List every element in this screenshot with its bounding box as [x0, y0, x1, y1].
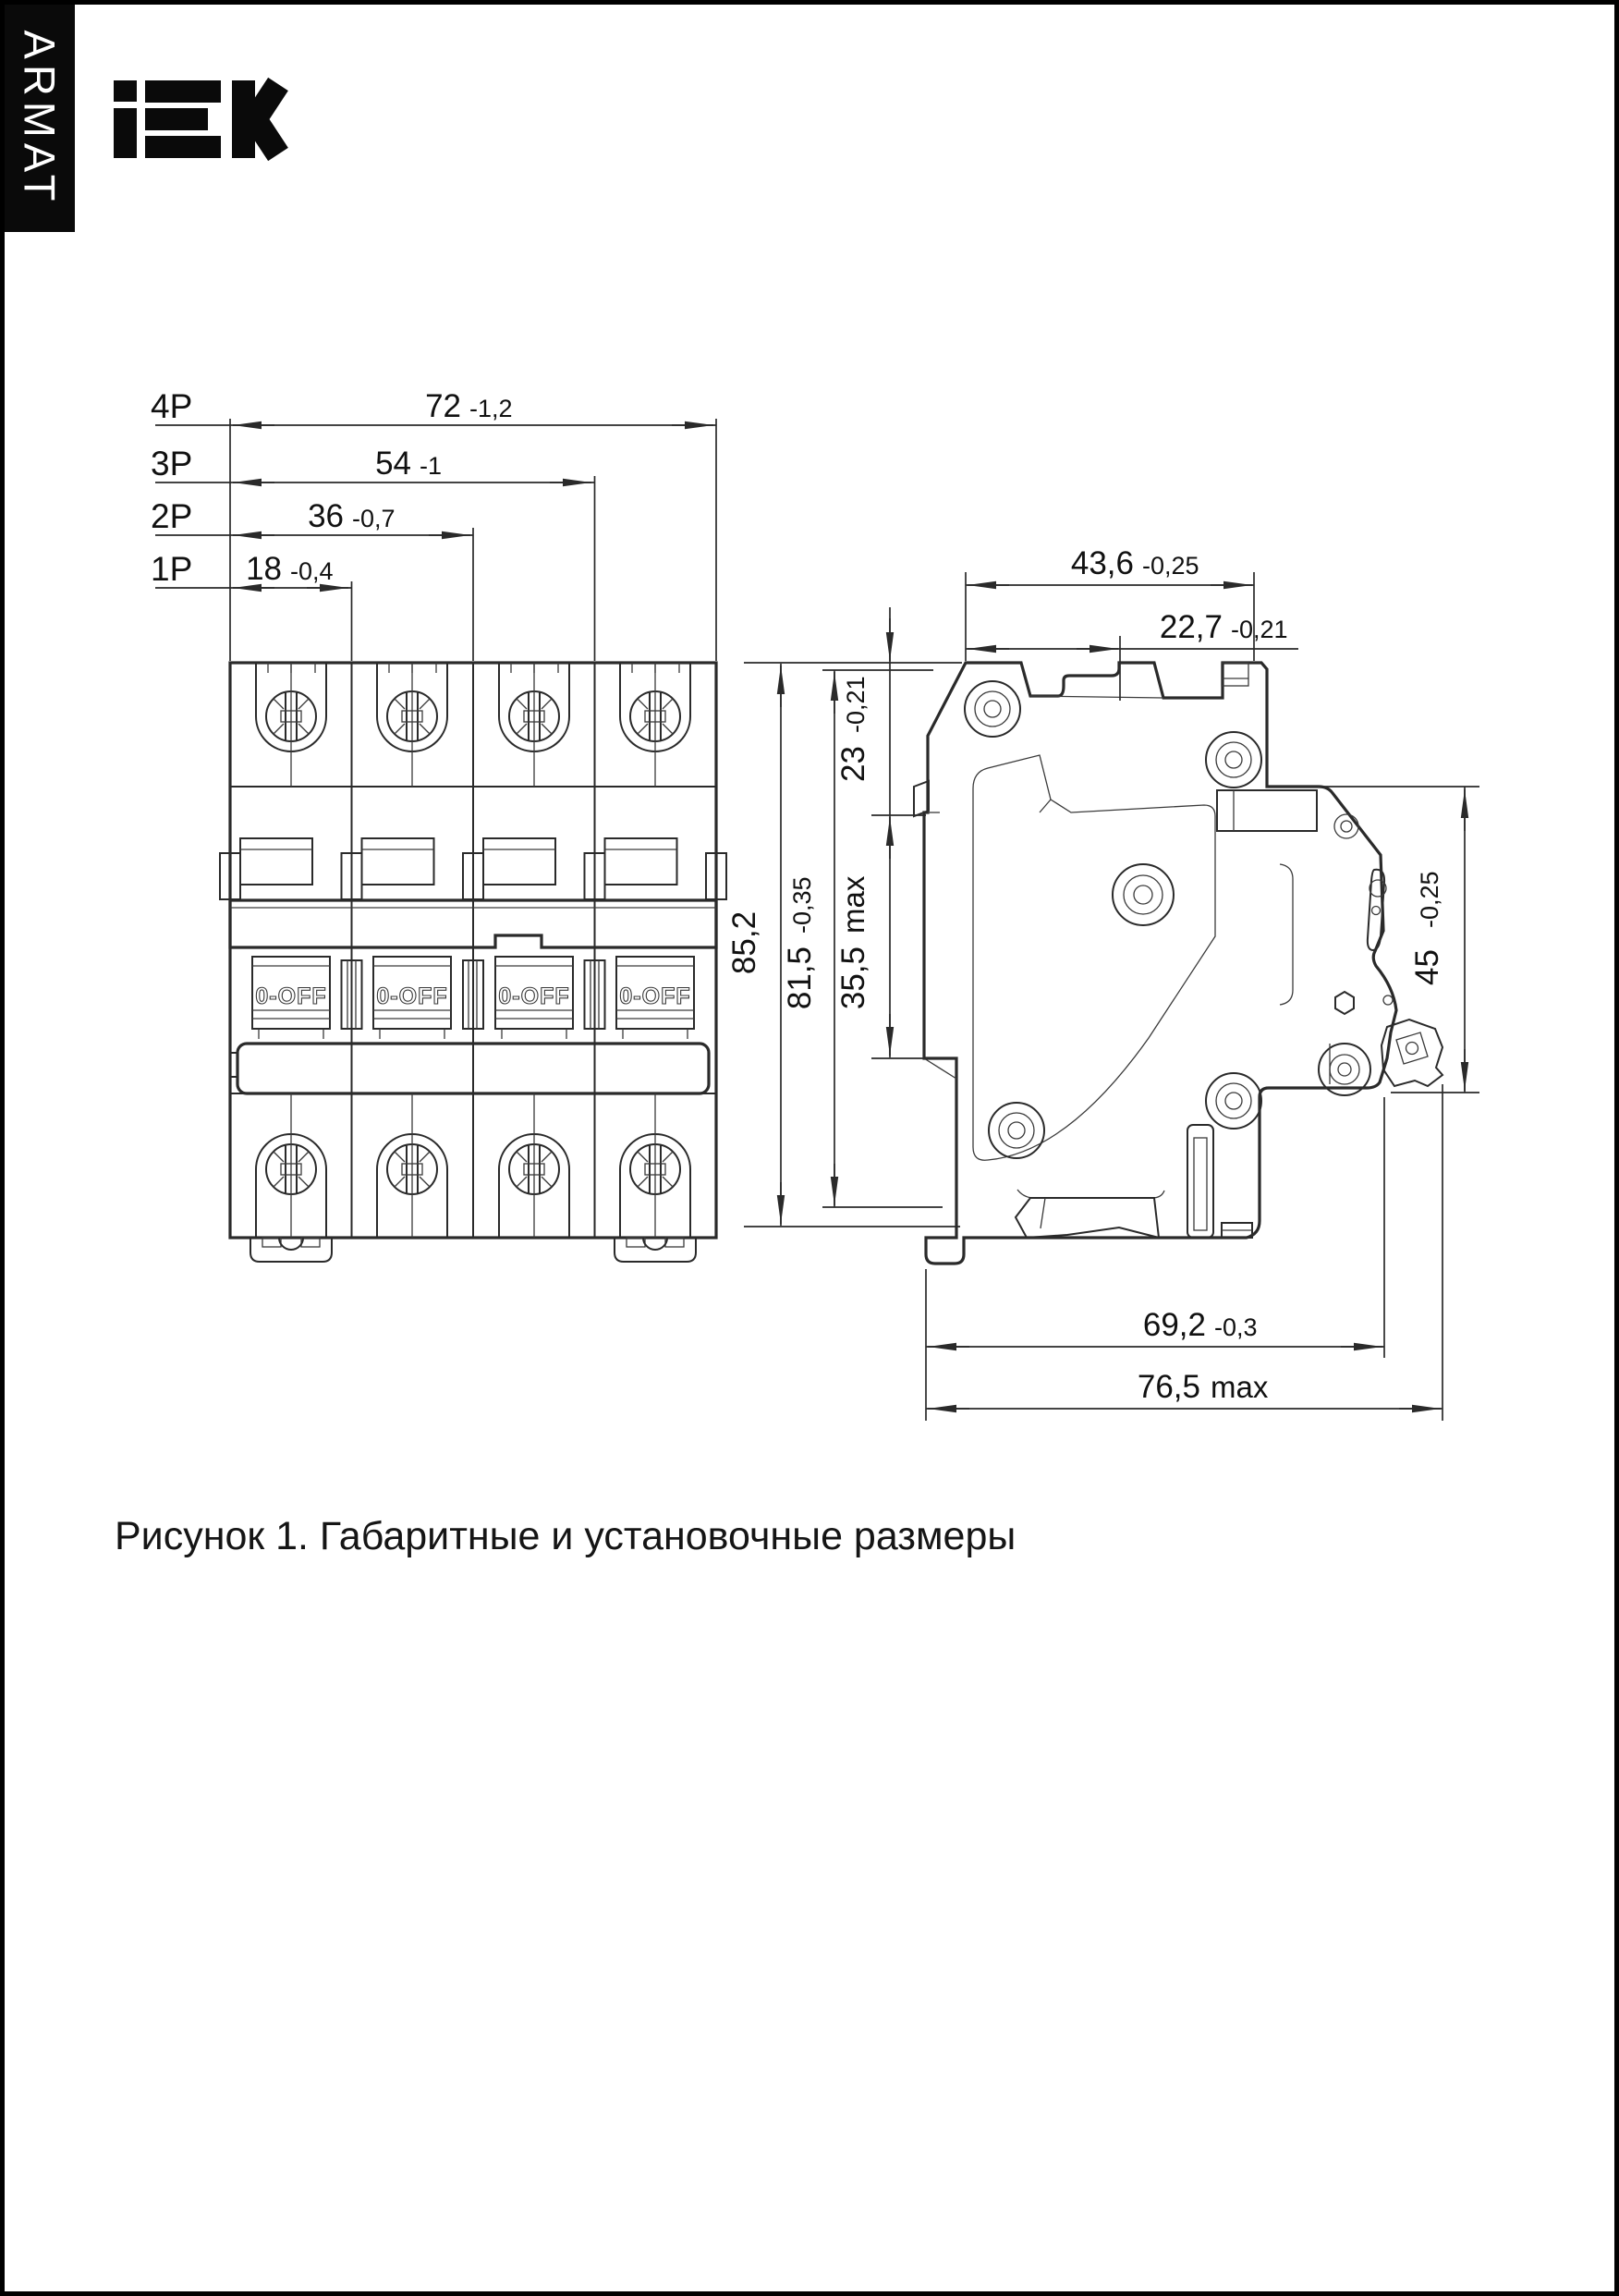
- din-clip: [615, 1238, 696, 1262]
- screw-terminal-icon: [620, 1093, 690, 1238]
- pole-count-label: 1P: [151, 550, 192, 588]
- lockout-slot: [1187, 1125, 1213, 1238]
- dim-tolerance: -0,25: [1416, 871, 1443, 928]
- dim-tolerance: -0,3: [1214, 1313, 1258, 1341]
- toggle-state-label: 0-OFF: [255, 983, 326, 1009]
- dim-tolerance: -1,2: [469, 395, 513, 422]
- toggle-lever-side: [1016, 1190, 1164, 1238]
- dimension-bottom-max: 76,5 max: [926, 1369, 1442, 1409]
- dim-value: 36: [308, 498, 344, 534]
- dim-value: 85,2: [726, 911, 762, 974]
- screw-terminal-icon: [256, 663, 326, 787]
- dim-value: 69,2: [1143, 1307, 1206, 1343]
- dim-tolerance: -0,35: [788, 876, 816, 934]
- dim-value: 72: [425, 388, 461, 424]
- screw-terminal-icon: [499, 1093, 569, 1238]
- pole-count-label: 4P: [151, 387, 192, 425]
- dimension-width-4p: 4P 72 -1,2: [151, 387, 716, 425]
- dim-tolerance: -0,21: [1231, 616, 1288, 643]
- dim-tolerance: -0,21: [842, 676, 870, 733]
- dim-value: 22,7: [1160, 609, 1223, 645]
- dimension-depth-front: 22,7 -0,21: [966, 609, 1298, 649]
- toggle-lever: 0-OFF: [373, 957, 451, 1039]
- dim-value: 54: [375, 446, 411, 482]
- dim-tolerance: -0,7: [352, 505, 396, 532]
- front-view-dimensions: 4P 72 -1,2 3P 54 -1 2P 36 -0,7: [151, 387, 716, 661]
- pole-count-label: 3P: [151, 445, 192, 482]
- screw-terminal-icon: [377, 1093, 447, 1238]
- dimension-height-body: 81,5 -0,35: [782, 670, 834, 1207]
- screw-terminal-icon: [499, 663, 569, 787]
- datasheet-page: ARMAT Рисунок 1. Габаритные и установочн…: [0, 0, 1619, 2296]
- dim-tolerance: max: [1211, 1370, 1269, 1404]
- toggle-state-label: 0-OFF: [376, 983, 447, 1009]
- din-clip: [250, 1238, 332, 1262]
- pole-count-label: 2P: [151, 497, 192, 535]
- screw-terminal-icon: [377, 663, 447, 787]
- dim-value: 43,6: [1071, 545, 1134, 581]
- front-view: 0-OFF 0-OFF 0-OFF: [220, 663, 726, 1262]
- dim-value: 45: [1409, 949, 1445, 985]
- toggle-state-label: 0-OFF: [619, 983, 690, 1009]
- mechanism-cavity: [973, 755, 1215, 1160]
- dimension-width-2p: 2P 36 -0,7: [151, 497, 473, 535]
- dim-value: 35,5: [835, 946, 871, 1009]
- dim-value: 76,5: [1138, 1369, 1200, 1405]
- dim-tolerance: -0,25: [1142, 552, 1199, 580]
- toggle-lever: 0-OFF: [252, 957, 330, 1039]
- dimension-nose-height: 35,5 max: [835, 875, 890, 1056]
- iek-logo-icon: [114, 80, 278, 158]
- technical-drawing: 0-OFF 0-OFF 0-OFF: [5, 5, 1619, 2296]
- side-view: [914, 663, 1442, 1264]
- dim-value: 81,5: [782, 946, 818, 1009]
- dimension-width-3p: 3P 54 -1: [151, 445, 595, 482]
- screw-terminal-icon: [256, 1093, 326, 1238]
- dimension-bottom-depth: 69,2 -0,3: [926, 1307, 1384, 1347]
- dim-tolerance: -1: [420, 452, 442, 480]
- dim-value: 23: [835, 746, 871, 782]
- dim-tolerance: max: [836, 875, 870, 934]
- toggle-state-label: 0-OFF: [498, 983, 569, 1009]
- dimension-depth-total: 43,6 -0,25: [966, 545, 1254, 585]
- screw-terminal-icon: [620, 663, 690, 787]
- dim-tolerance: -0,4: [290, 557, 334, 585]
- dim-value: 18: [246, 551, 282, 587]
- toggle-lever: 0-OFF: [495, 957, 573, 1039]
- dimension-width-1p: 1P 18 -0,4: [151, 550, 352, 588]
- hex-hole: [1335, 992, 1354, 1014]
- toggle-lever: 0-OFF: [616, 957, 694, 1039]
- din-slot: [1217, 790, 1317, 831]
- dimension-height-total: 85,2: [726, 664, 781, 1226]
